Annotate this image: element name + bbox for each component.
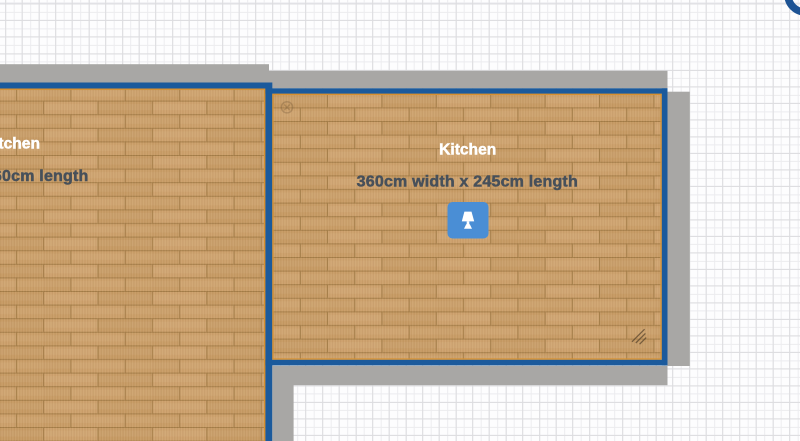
svg-text:360cm width x 360cm length: 360cm width x 360cm length bbox=[0, 168, 89, 185]
svg-text:Kitchen: Kitchen bbox=[0, 136, 40, 153]
svg-text:360cm width x 245cm length: 360cm width x 245cm length bbox=[357, 174, 578, 191]
svg-text:Kitchen: Kitchen bbox=[439, 142, 496, 159]
